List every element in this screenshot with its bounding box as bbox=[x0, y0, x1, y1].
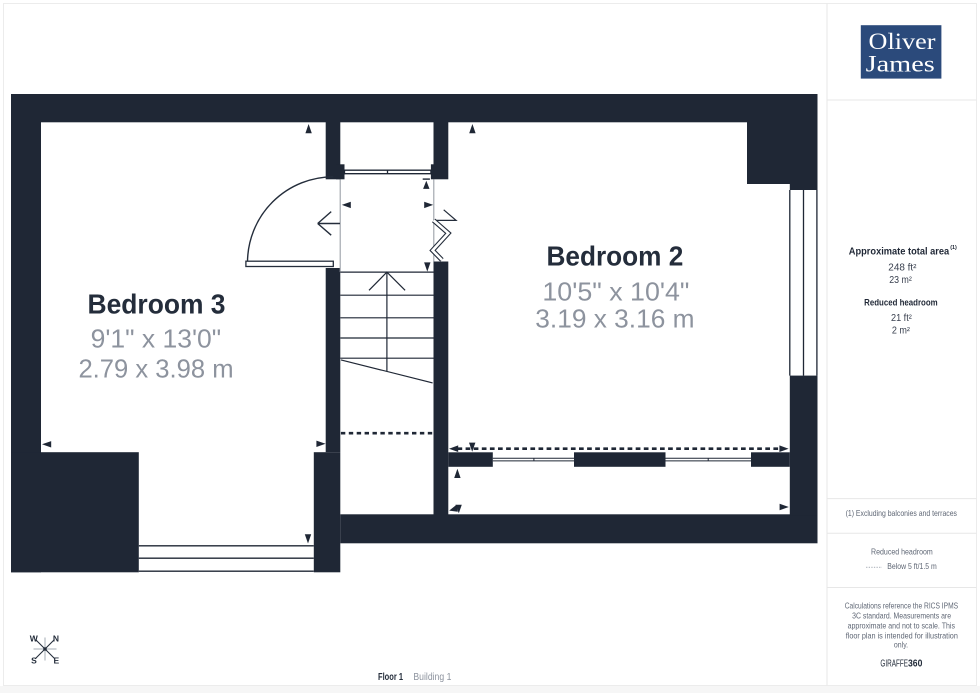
svg-text:2 m²: 2 m² bbox=[892, 325, 911, 336]
svg-text:E: E bbox=[53, 655, 59, 665]
svg-text:248 ft²: 248 ft² bbox=[888, 263, 917, 274]
svg-text:only.: only. bbox=[894, 640, 908, 650]
svg-text:(1): (1) bbox=[950, 245, 957, 251]
svg-text:N: N bbox=[53, 633, 59, 643]
svg-text:3C standard. Measurements are: 3C standard. Measurements are bbox=[852, 611, 951, 621]
svg-text:23 m²: 23 m² bbox=[889, 275, 912, 286]
svg-text:Floor 1: Floor 1 bbox=[378, 672, 403, 683]
svg-text:Oliver: Oliver bbox=[869, 29, 936, 54]
svg-text:Calculations reference the RIC: Calculations reference the RICS IPMS bbox=[845, 601, 959, 611]
svg-text:(1) Excluding balconies and te: (1) Excluding balconies and terraces bbox=[846, 508, 957, 518]
svg-text:W: W bbox=[30, 633, 39, 643]
svg-text:Below 5 ft/1.5 m: Below 5 ft/1.5 m bbox=[887, 561, 937, 571]
svg-text:GIRAFFE: GIRAFFE bbox=[880, 657, 908, 669]
svg-text:360: 360 bbox=[908, 657, 923, 669]
svg-text:James: James bbox=[866, 52, 935, 77]
svg-text:Bedroom 2: Bedroom 2 bbox=[547, 241, 684, 272]
svg-text:approximate and not to scale.: approximate and not to scale. This bbox=[848, 621, 955, 631]
svg-text:Reduced headroom: Reduced headroom bbox=[864, 298, 938, 308]
svg-text:Bedroom 3: Bedroom 3 bbox=[88, 289, 226, 320]
svg-text:Approximate total area: Approximate total area bbox=[849, 247, 950, 258]
svg-text:S: S bbox=[31, 655, 37, 665]
svg-text:9'1" x 13'0": 9'1" x 13'0" bbox=[91, 323, 222, 353]
svg-text:3.19 x 3.16 m: 3.19 x 3.16 m bbox=[535, 304, 694, 334]
svg-text:21 ft²: 21 ft² bbox=[891, 313, 912, 324]
svg-text:10'5" x 10'4": 10'5" x 10'4" bbox=[542, 276, 689, 306]
svg-text:Building 1: Building 1 bbox=[413, 672, 451, 683]
svg-text:Reduced headroom: Reduced headroom bbox=[871, 547, 933, 557]
svg-text:2.79 x 3.98 m: 2.79 x 3.98 m bbox=[78, 354, 233, 384]
